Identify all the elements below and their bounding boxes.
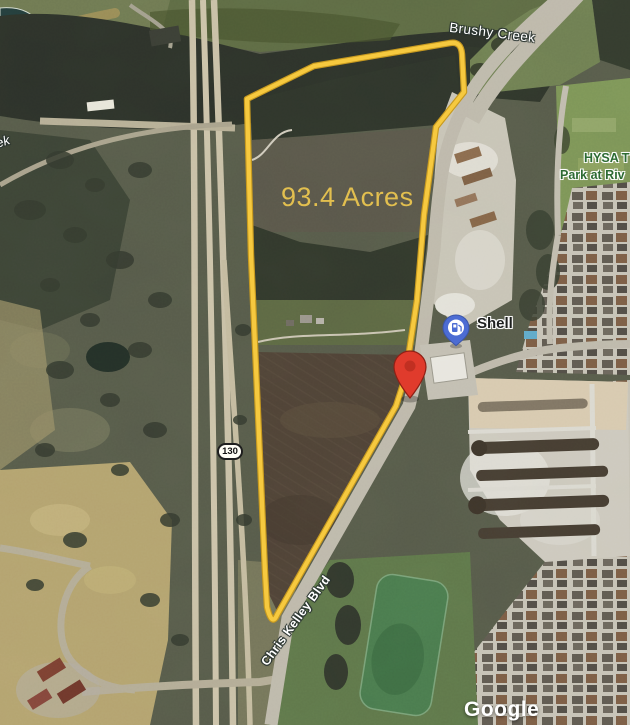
park-label-line1: HYSA T (584, 152, 629, 165)
google-watermark[interactable]: Google (464, 699, 539, 721)
map-terrain (0, 0, 630, 725)
parcel-area-label: 93.4 Acres (281, 183, 414, 211)
park-label-line2: Park at Riv (560, 169, 625, 182)
satellite-map[interactable]: Brushy Creek ek HYSA T Park at Riv Shell… (0, 0, 630, 725)
route-130-number: 130 (222, 446, 238, 457)
gas-station-label: Shell (477, 316, 513, 332)
route-130-shield: 130 (217, 443, 243, 460)
